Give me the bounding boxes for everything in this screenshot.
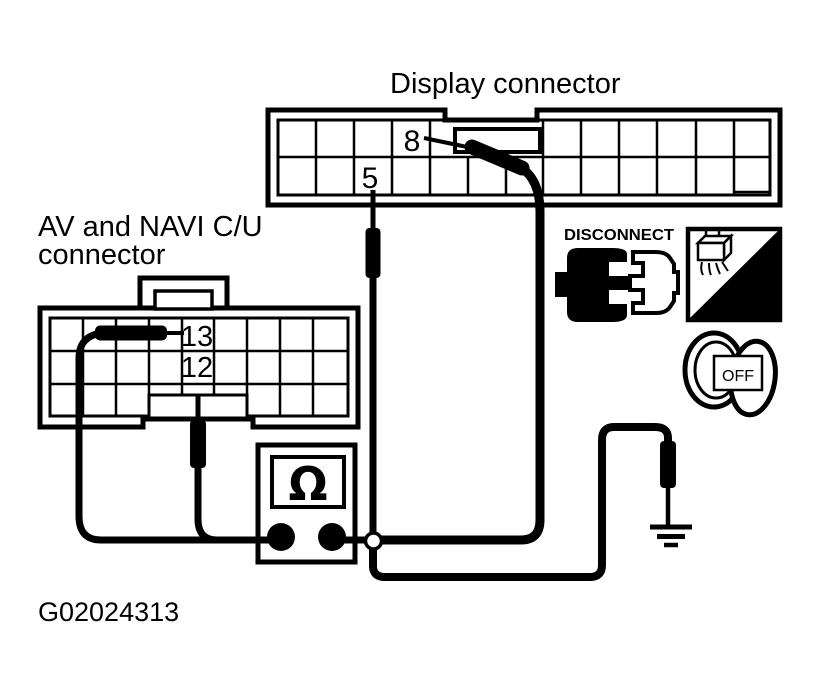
probe-ground [660,441,676,488]
figure-id: G02024313 [38,597,179,627]
disconnect-socket [630,252,678,313]
display-connector-title: Display connector [390,68,621,100]
hs-label: H.S. [721,282,774,312]
av-navi-title-line2: connector [38,239,166,271]
hs-glyph-wires [701,262,728,275]
omega-symbol: Ω [288,457,327,511]
probe-pin12 [190,420,206,468]
ignition-off-icon: OFF [685,333,780,418]
diagram-svg: 8 5 Display connector AV and NAVI C/U co… [0,0,820,700]
disconnect-icon: DISCONNECT [555,227,678,322]
ground-icon [650,527,692,545]
junction-dot [366,533,382,549]
tab-slot [155,291,212,309]
probe-pin13 [95,326,167,341]
pin-12-label: 12 [181,352,213,384]
display-connector: 8 5 [268,110,780,205]
meter-terminal-right [318,523,346,551]
lead-ground-wire [373,427,668,577]
pin-13-label: 13 [181,321,213,353]
hs-connector-glyph [698,230,731,275]
lead-pin8-wire [380,167,540,540]
pin-5-label: 5 [362,162,379,195]
hs-icon: H.S. [688,229,780,320]
lead-pin12-wire [198,466,217,540]
hs-glyph-front [698,243,724,260]
probe-pin5 [366,228,381,278]
pin-8-label: 8 [404,125,421,158]
meter-terminal-left [267,523,295,551]
wiring-diagram: 8 5 Display connector AV and NAVI C/U co… [0,0,820,700]
disconnect-label: DISCONNECT [564,227,674,244]
off-label: OFF [722,368,754,385]
disconnect-plug-tab [555,272,569,297]
